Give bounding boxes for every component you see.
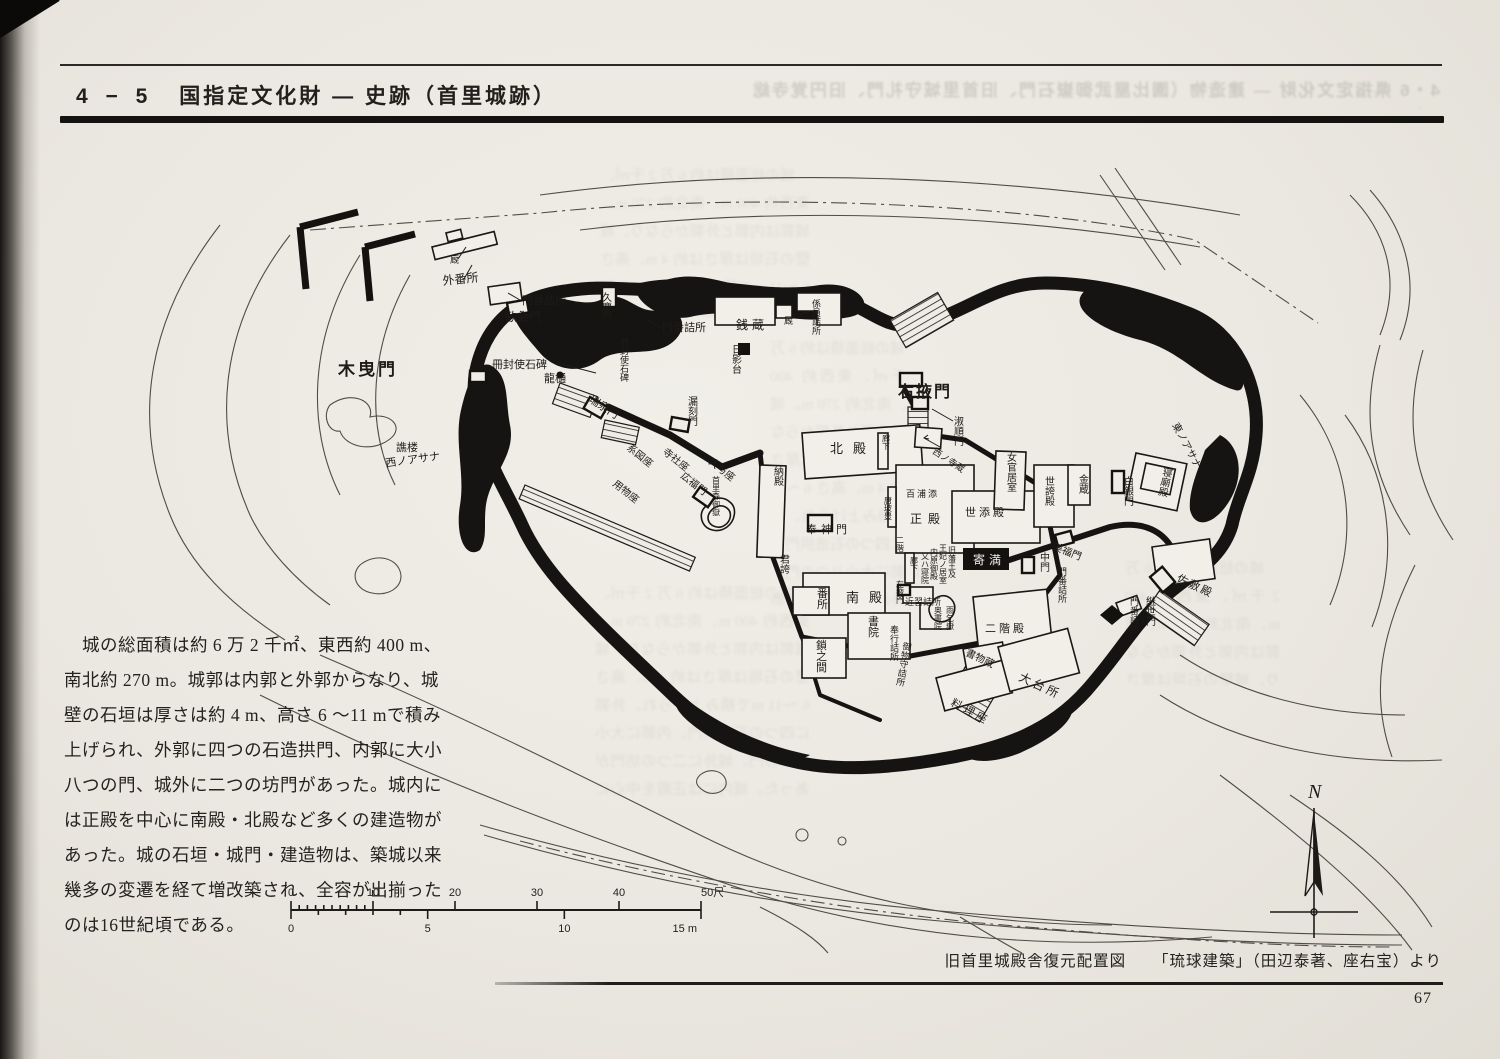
map-label: 冊封使石碑 <box>492 357 547 371</box>
description-line: 壁の石垣は厚さは約 4 m、高さ 6 〜11 mで積み <box>64 698 488 733</box>
scale-bar: 01020304050尺051015 m <box>283 880 723 938</box>
scale-tick-label: 0 <box>288 887 294 899</box>
description-line: 城の総面積は約 6 万 2 千㎡、東西約 400 m、 <box>64 628 488 663</box>
map-label: 君誇 <box>780 554 790 576</box>
map-label: 木曳門 <box>337 359 398 379</box>
map-label: 系図座 <box>624 441 656 470</box>
scale-tick-label: 20 <box>449 887 461 899</box>
map-label: 係員詰所 <box>812 299 821 336</box>
building-ryoriza <box>936 660 1012 711</box>
description-line: 上げられ、外郭に四つの石造拱門、内郭に大小 <box>64 733 488 768</box>
gate-rokokumon <box>670 417 690 432</box>
figure-caption: 旧首里城殿舎復元配置図 「琉球建築」（田辺泰著、座右宝）より <box>945 949 1442 971</box>
map-label: 世添殿 <box>965 505 1007 519</box>
section-title: 国指定文化財 ― 史跡（首里城跡） <box>179 85 557 108</box>
map-label: 奥書院 <box>934 605 942 631</box>
map-label: 外番所 <box>442 270 479 288</box>
description-line: は正殿を中心に南殿・北殿など多くの建造物が <box>64 803 488 838</box>
scanned-book-page: 4 − 5国指定文化財 ― 史跡（首里城跡） 4・6 県指定文化財 ― 建造物（… <box>0 0 1500 1059</box>
map-label: 用物座 <box>610 477 642 506</box>
map-label: 瑞泉門 <box>586 392 621 422</box>
building-sotobansho <box>432 232 497 260</box>
compass-arrow-outline <box>1305 812 1314 896</box>
map-label: 左掖門 <box>896 579 904 605</box>
map-label: 雨乞嶽 <box>946 606 954 631</box>
map-label: 厩 <box>784 316 793 326</box>
north-label: N <box>1307 781 1323 803</box>
map-label: 首里森御嶽 <box>712 475 720 517</box>
gate-kobikimon <box>470 371 486 382</box>
header-thick-rule <box>60 116 1444 123</box>
scale-tick-label: 0 <box>288 923 294 935</box>
section-number: 4 − 5 <box>76 85 153 108</box>
map-label: 奉行詰所 <box>890 624 899 662</box>
description-line: 南北約 270 m。城郭は内郭と外郭からなり、城 <box>64 663 488 698</box>
book-spine-shadow <box>0 0 40 1059</box>
description-line: あった。城の石垣・城門・建造物は、築城以来 <box>64 838 488 873</box>
gate-chumon <box>1022 557 1034 573</box>
map-label: 淑順門 <box>954 415 964 448</box>
map-label: 旧藩王及 <box>948 546 956 579</box>
map-label: 龍樋 <box>544 371 566 385</box>
map-label: 南殿 <box>846 590 892 605</box>
map-label: 女官居室 <box>1007 451 1017 494</box>
map-label: 漏刻門 <box>688 396 698 428</box>
map-label: 又ハ寝院 <box>921 552 929 585</box>
footer-rule <box>495 982 1443 985</box>
scale-tick-label: 15 m <box>673 923 697 935</box>
outer-ward-wall-marks <box>300 212 415 301</box>
scale-tick-label: 50尺 <box>701 887 723 899</box>
map-label: 奉神門 <box>806 522 851 536</box>
map-label: 門番詰所 <box>1130 597 1139 634</box>
map-label: 右掖門 <box>898 382 952 401</box>
map-label: 門番詰所 <box>1058 567 1067 604</box>
map-label: 中門 <box>1040 551 1050 574</box>
map-label: 唐玻豊 <box>884 495 892 521</box>
map-label: 門番詰所 <box>662 320 706 334</box>
map-label: 百浦添 <box>906 488 939 499</box>
map-label: 厩 <box>450 255 459 265</box>
map-label: 久慶門 <box>602 292 612 324</box>
map-label: 世誇殿 <box>1045 476 1055 508</box>
map-label: 銭蔵 <box>736 317 768 332</box>
map-label: 納殿 <box>774 465 784 488</box>
scale-tick-label: 30 <box>531 887 543 899</box>
label-leader-lines <box>458 247 953 447</box>
map-label: 日影台 <box>732 345 742 376</box>
map-label: 冊封使石碑 <box>620 337 629 383</box>
bleedthrough-header: 4・6 県指定文化財 ― 建造物（園比屋武御嶽石門、旧首里城守礼門、旧円覚寺総門… <box>740 78 1440 108</box>
map-label: 鎖之間 <box>816 638 827 674</box>
scale-tick-label: 40 <box>613 887 625 899</box>
page-title: 4 − 5国指定文化財 ― 史跡（首里城跡） <box>76 80 557 110</box>
description-line: 八つの門、城外に二つの坊門があった。城内に <box>64 768 488 803</box>
map-label: 王妃ノ居室 <box>939 544 947 585</box>
scale-tick-label: 10 <box>558 923 570 935</box>
map-label: 譙楼 <box>396 440 418 454</box>
map-label: 廊下 <box>910 555 918 573</box>
gate-hakuginmon <box>1112 471 1124 493</box>
map-label: 番所 <box>817 587 828 611</box>
map-label: 二階 <box>896 536 904 553</box>
map-label: 内原御殿 <box>930 547 938 581</box>
page-number: 67 <box>1414 990 1432 1008</box>
map-label: 廊下 <box>882 433 890 451</box>
map-label: 歓会門 <box>505 310 541 324</box>
north-arrow: N <box>1262 778 1372 948</box>
header-top-rule <box>60 64 1442 66</box>
map-label: 門番詰所 <box>522 293 566 307</box>
compass-arrow-filled <box>1314 812 1323 896</box>
scale-tick-label: 5 <box>425 923 431 935</box>
map-label: 継世門 <box>1146 595 1156 628</box>
caption-source: 「琉球建築」（田辺泰著、座右宝）より <box>1153 953 1442 970</box>
map-label: 書院 <box>868 614 879 639</box>
scale-tick-label: 10 <box>367 887 379 899</box>
map-label: 金蔵 <box>1079 473 1089 496</box>
map-label: 正殿 <box>910 512 946 526</box>
caption-title: 旧首里城殿舎復元配置図 <box>945 953 1127 970</box>
map-label: 寄満 <box>973 552 1005 567</box>
map-label: 二階殿 <box>985 621 1027 635</box>
map-label: 北殿 <box>830 441 876 456</box>
map-label: 白銀門 <box>1124 475 1134 508</box>
